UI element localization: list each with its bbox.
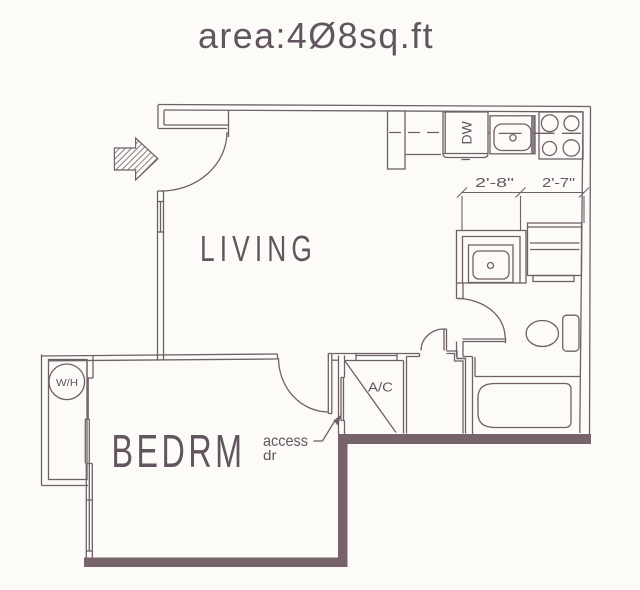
svg-text:DW: DW [459, 120, 475, 144]
svg-text:2'-7": 2'-7" [542, 175, 575, 190]
svg-text:BEDRM: BEDRM [112, 425, 246, 477]
svg-text:2'-8": 2'-8" [475, 175, 515, 190]
svg-text:dr: dr [263, 447, 277, 463]
svg-text:A/C: A/C [368, 381, 393, 395]
svg-text:LIVING: LIVING [200, 228, 317, 269]
svg-text:W/H: W/H [56, 378, 78, 389]
svg-text:area:4Ø8sq.ft: area:4Ø8sq.ft [198, 15, 434, 56]
